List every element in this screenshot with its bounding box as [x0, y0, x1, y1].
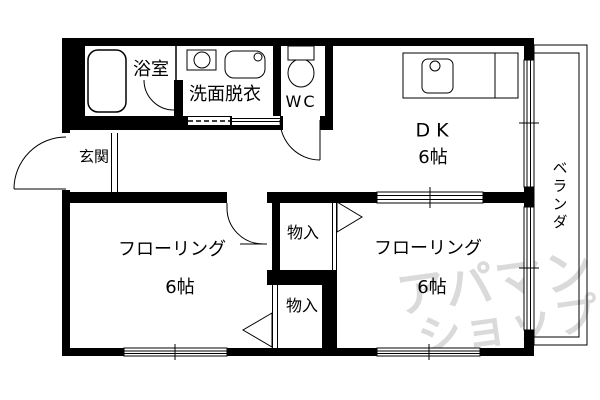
bath-door	[144, 80, 174, 110]
toilet-tank-icon	[288, 46, 314, 60]
kitchen-faucet-icon	[430, 61, 440, 71]
wc-label: WC	[286, 94, 317, 110]
closet-upper-track	[333, 203, 337, 270]
wall-washroom-wc	[273, 38, 281, 124]
wash-basin-faucet-icon	[254, 53, 262, 61]
bathtub-icon	[88, 50, 126, 112]
closet-lower-triangle	[243, 313, 272, 347]
flooring-left-label: フローリング	[118, 241, 226, 259]
washroom-label: 洗面脱衣	[189, 86, 261, 104]
closet-lower-label: 物入	[286, 298, 318, 314]
entrance-opening	[61, 133, 71, 190]
wc-door-opening	[283, 116, 320, 130]
floorplan-canvas: アパマン ショップ	[0, 0, 600, 400]
floorplan-drawing: アパマン ショップ	[0, 0, 600, 400]
wall-closet-divider	[267, 270, 337, 285]
toilet-bowl-icon	[288, 59, 314, 87]
watermark-logo: アパマン ショップ	[393, 242, 600, 365]
wall-mid-right	[483, 192, 534, 203]
wall-top	[62, 38, 534, 46]
dk-room-slider	[377, 187, 483, 208]
closet-upper-label: 物入	[287, 225, 319, 241]
wall-closet-upper-left	[272, 203, 280, 277]
wall-closet-lower-right	[322, 285, 337, 348]
window-bottom-left	[124, 344, 227, 360]
flooring-left-door	[227, 203, 267, 244]
entrance-step-lines	[112, 133, 118, 192]
wall-wc-dk	[325, 38, 333, 124]
closet-lower-track	[273, 285, 278, 348]
entrance-door	[14, 137, 66, 189]
balcony-label: ベランダ	[552, 160, 567, 232]
entrance-label: 玄関	[79, 150, 109, 165]
kitchen-counter-icon	[403, 53, 518, 98]
washing-machine-drum-icon	[194, 52, 210, 68]
flooring-left-size-label: 6帖	[165, 279, 194, 297]
flooring-right-size-label: 6帖	[417, 279, 446, 297]
wall-mid-center	[267, 192, 377, 203]
dk-label: DK	[415, 122, 454, 141]
wall-bath-door-post	[174, 80, 183, 116]
bath-label: 浴室	[133, 61, 169, 79]
wall-mid-left	[62, 192, 227, 203]
balcony-slider-upper	[519, 60, 539, 187]
closet-upper-triangle	[337, 202, 362, 232]
dk-size-label: 6帖	[418, 149, 447, 167]
washroom-slider-opening	[232, 116, 280, 125]
flooring-right-label: フローリング	[374, 240, 482, 258]
